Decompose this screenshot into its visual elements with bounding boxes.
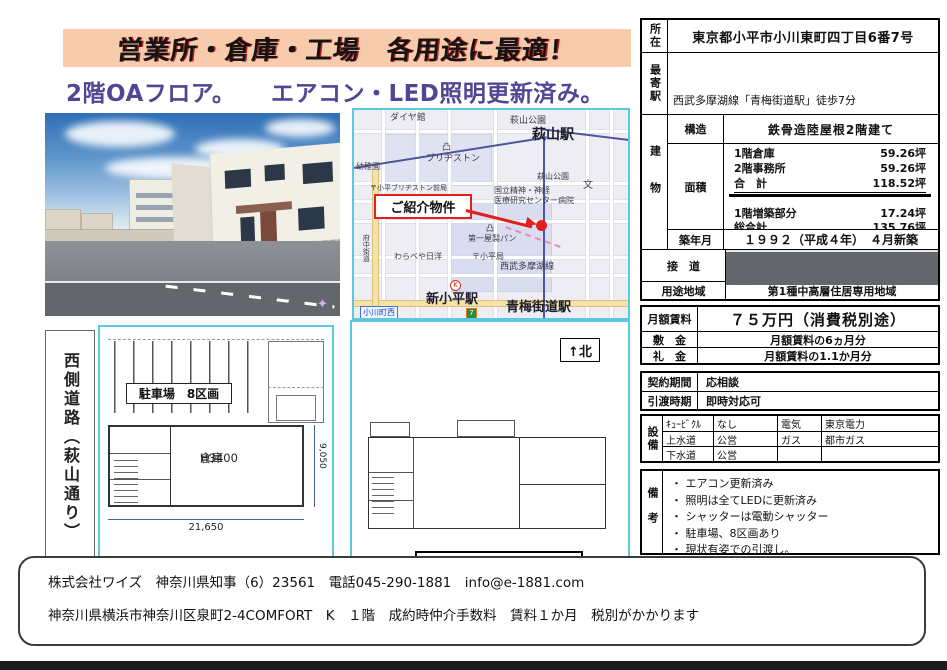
dimension-width: 21,650	[108, 522, 304, 533]
interior-wall	[110, 453, 170, 454]
label-deposit: 敷 金	[642, 332, 698, 347]
location-map: ダイヤ館 萩山公園 萩山駅 凸 ブリヂストン 幼稚園 〒小平ブリヂストン前局 萩…	[352, 108, 630, 320]
page-subtitle: 2階OAフロア。 エアコン・LED照明更新済み。	[66, 74, 604, 108]
floorplan-2f: ↑北	[350, 320, 630, 560]
agency-line1: 株式会社ワイズ 神奈川県知事（6）23561 電話045-290-1881 in…	[48, 571, 924, 591]
facility-cell: 下水道	[663, 446, 713, 461]
note-item: ・ 駐車場、8区画あり	[671, 526, 934, 543]
warehouse-label-line2: H3400	[200, 449, 238, 467]
interior-wall	[519, 484, 605, 485]
title-banner: 営業所・倉庫・工場 各用途に最適！	[63, 29, 631, 67]
cloud	[65, 121, 175, 147]
facilities-grid: ｷｭｰﾋﾞｸﾙ なし 電気 東京電力 上水道 公営 ガス 都市ガス 下水道 公営	[663, 416, 938, 461]
facility-cell: 電気	[777, 416, 821, 431]
facility-cell: なし	[713, 416, 777, 431]
value-structure: 鉄骨造陸屋根2階建て	[724, 115, 938, 143]
property-detail-table: 所在 東京都小平市小川東町四丁目6番7号 最寄駅 西武多摩湖線「青梅街道駅」徒歩…	[640, 18, 940, 301]
area-row: 1階増築部分17.24坪	[734, 207, 926, 222]
agency-line2: 神奈川県横浜市神奈川区泉町2-4COMFORT K １階 成約時仲介手数料 賃料…	[48, 604, 924, 624]
map-label-hospital-1: 国立精神・神経	[494, 186, 550, 196]
dimension-line	[314, 425, 315, 507]
area-row: 1階倉庫59.26坪	[734, 147, 926, 162]
label-notes: 備考	[642, 471, 663, 553]
window	[298, 206, 325, 230]
facility-cell: 公営	[713, 446, 777, 461]
value-deposit: 月額賃料の6ヵ月分	[698, 332, 938, 347]
map-street	[494, 110, 497, 318]
value-rent: ７５万円（消費税別途）	[698, 307, 938, 331]
window	[225, 169, 252, 189]
map-label-hagiyama-park: 萩山公園	[510, 116, 546, 127]
stairs	[114, 457, 138, 503]
map-label-kindergarten: 幼稚園	[356, 162, 380, 172]
area-row: 2階事務所59.26坪	[734, 162, 926, 177]
map-label-bridgestone: ブリヂストン	[426, 154, 480, 165]
annex-structure	[276, 395, 316, 421]
map-label-hospital-2: 医療研究センター病院	[494, 196, 574, 206]
interior-wall	[369, 472, 413, 473]
facility-cell	[821, 446, 938, 461]
label-area: 面積	[668, 144, 724, 229]
dimension-line	[108, 519, 304, 520]
front-road	[45, 281, 340, 316]
facility-cell: 上水道	[663, 431, 713, 446]
factory-icon: 凸	[442, 143, 451, 154]
label-key-money: 礼 金	[642, 348, 698, 363]
map-badge-ogawacho-nishi: 小川町西	[360, 306, 398, 319]
building-section: 建物 構造 鉄骨造陸屋根2階建て 面積 1階倉庫59.26坪 2階事務所59.2…	[642, 114, 938, 249]
area-row-spacer	[734, 198, 926, 207]
notes-table: 備考 ・ エアコン更新済み ・ 照明は全てLEDに更新済み ・ シャッターは電動…	[640, 469, 940, 555]
window	[264, 164, 285, 182]
store-icon-7: 7	[466, 308, 477, 319]
facility-cell: ガス	[777, 431, 821, 446]
facility-cell: 都市ガス	[821, 431, 938, 446]
value-road: 西側： 市道（萩山通り）幅員１１ｍ に約２１ｍ接道	[726, 250, 938, 285]
loading-entrance-box	[457, 420, 515, 437]
facility-cell: ｷｭｰﾋﾞｸﾙ	[663, 416, 713, 431]
map-label-daiyakan: ダイヤ館	[390, 113, 426, 124]
value-zoning: 第1種中高層住居専用地域	[726, 282, 938, 299]
station-line: 西武多摩湖線「青梅街道駅」徒歩7分	[673, 92, 938, 109]
school-mark: 文	[583, 180, 593, 192]
facilities-table: 設備 ｷｭｰﾋﾞｸﾙ なし 電気 東京電力 上水道 公営 ガス 都市ガス 下水道…	[640, 414, 940, 463]
label-built: 築年月	[668, 230, 724, 249]
west-road-label-box: 西側道路（萩山通り）	[45, 330, 95, 563]
rent-table: 月額賃料 ７５万円（消費税別途） 敷 金 月額賃料の6ヵ月分 礼 金 月額賃料の…	[640, 305, 940, 365]
note-item: ・ エアコン更新済み	[671, 476, 934, 493]
label-zoning: 用途地域	[642, 282, 726, 299]
map-label-warabeya: わらべや日洋	[394, 252, 442, 262]
parking-label-box: 駐車場 8区画	[126, 383, 232, 404]
label-facilities: 設備	[642, 416, 663, 461]
map-street	[586, 110, 589, 318]
label-building: 建物	[642, 115, 668, 249]
label-location: 所在	[642, 20, 668, 52]
map-street	[610, 110, 613, 318]
value-location: 東京都小平市小川東町四丁目6番7号	[668, 20, 938, 52]
value-key-money: 月額賃料の1.1か月分	[698, 348, 938, 363]
site-side-divider	[268, 387, 324, 388]
entrance-box	[370, 422, 410, 437]
page-title: 営業所・倉庫・工場 各用途に最適！	[116, 30, 579, 67]
map-label-omekaido-station: 青梅街道駅	[506, 300, 571, 316]
property-photo: ✦	[45, 113, 340, 316]
label-stations: 最寄駅	[642, 53, 668, 114]
interior-wall	[170, 427, 171, 505]
property-marker	[536, 220, 547, 231]
value-areas: 1階倉庫59.26坪 2階事務所59.26坪 合 計118.52坪 1階増築部分…	[724, 144, 938, 229]
bottom-edge-bar	[0, 661, 947, 670]
facility-cell: 東京電力	[821, 416, 938, 431]
map-label-shin-kodaira-station: 新小平駅	[426, 292, 478, 308]
value-stations: 西武多摩湖線「青梅街道駅」徒歩7分 西武拝島線 「萩山駅」 徒歩8分 JR武蔵野…	[668, 53, 938, 114]
value-contract: 応相談	[698, 373, 938, 391]
label-handover: 引渡時期	[642, 392, 698, 409]
warehouse-outline: 倉庫 H3400	[108, 425, 304, 507]
interior-wall	[519, 438, 520, 528]
site-boundary-line	[108, 339, 324, 340]
notes-body: ・ エアコン更新済み ・ 照明は全てLEDに更新済み ・ シャッターは電動シャッ…	[663, 471, 938, 553]
north-arrow-box: ↑北	[560, 338, 600, 362]
map-label-post-office-1: 〒小平ブリヂストン前局	[370, 184, 447, 192]
cloud	[265, 119, 335, 137]
map-label-post-office-2: 〒小平局	[472, 252, 504, 262]
note-item: ・ 照明は全てLEDに更新済み	[671, 493, 934, 510]
label-structure: 構造	[668, 115, 724, 143]
window	[302, 162, 333, 185]
label-contract: 契約期間	[642, 373, 698, 391]
dimension-height: 9,050	[317, 443, 327, 469]
property-callout: ご紹介物件	[374, 194, 472, 219]
factory-icon: 凸	[486, 224, 494, 234]
value-built: １９９２（平成４年） ４月新築	[724, 230, 938, 249]
area-row-total: 総合計135.76坪	[734, 221, 926, 229]
area-row-subtotal: 合 計118.52坪	[734, 177, 926, 193]
facility-cell: 公営	[713, 431, 777, 446]
agency-info-box: 株式会社ワイズ 神奈川県知事（6）23561 電話045-290-1881 in…	[18, 556, 926, 646]
value-handover: 即時対応可	[698, 392, 938, 409]
note-item: ・ シャッターは電動シャッター	[671, 509, 934, 526]
store-icon-k: K	[450, 280, 461, 291]
west-road-label: 西側道路（萩山通り）	[58, 352, 82, 542]
terms-table: 契約期間 応相談 引渡時期 即時対応可	[640, 371, 940, 411]
stairs	[372, 476, 394, 514]
floorplan-1f: 駐車場 8区画 倉庫 H3400 21,650 9,050	[98, 325, 334, 563]
label-road: 接 道	[642, 250, 726, 281]
facility-cell	[777, 446, 821, 461]
map-label-fuchu-kaido: 府中街道	[362, 234, 370, 262]
map-label-daiichiya: 第一屋製パン	[468, 234, 516, 244]
label-rent: 月額賃料	[642, 307, 698, 331]
map-label-hagiyama-station: 萩山駅	[532, 127, 574, 144]
office-outline	[368, 437, 606, 529]
map-label-tamako-line: 西武多摩湖線	[500, 262, 554, 273]
sparkle-watermark-icon: ✦	[317, 297, 328, 312]
map-label-hagiyama-park-2: 萩山公園	[537, 172, 569, 182]
interior-wall	[413, 438, 414, 528]
